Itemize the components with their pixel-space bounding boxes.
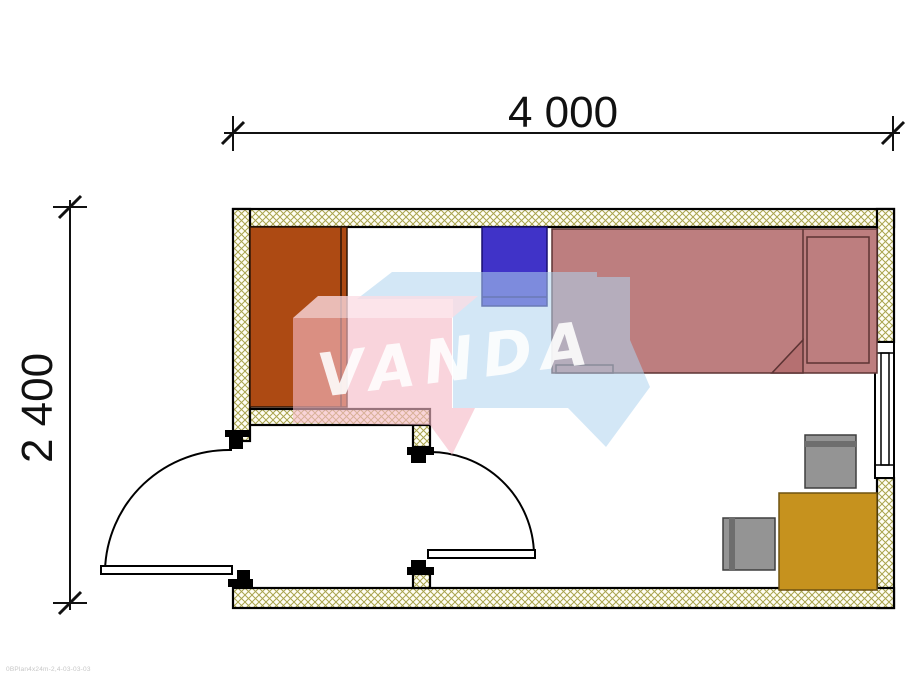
watermark-pink-topface <box>293 296 478 318</box>
entry-door-swing <box>101 450 232 574</box>
interior-door-bottom-jamb <box>407 567 434 575</box>
entry-door-bottom-jamb <box>228 579 253 587</box>
interior-door-bottom-jamb-block <box>411 560 426 568</box>
door-jambs <box>225 430 434 587</box>
desk <box>779 493 877 590</box>
left-wall <box>233 209 250 441</box>
chair-left-backrest <box>729 518 735 570</box>
window <box>875 342 894 478</box>
chair-left <box>723 518 775 570</box>
floor-plan-canvas: 4 000 2 400 VANDA 0BPlan4x24m-2,4-03-03-… <box>0 0 924 700</box>
height-dimension-label: 2 400 <box>13 353 62 463</box>
interior-door-leaf <box>428 550 535 558</box>
footer-note: 0BPlan4x24m-2,4-03-03-03 <box>6 666 91 673</box>
vanda-watermark: VANDA <box>293 272 650 455</box>
floor-plan-drawing: 4 000 2 400 VANDA <box>0 0 924 700</box>
bed-pillow <box>807 237 869 363</box>
door-pier <box>413 574 430 588</box>
interior-door-top-jamb-block <box>411 455 426 463</box>
width-dimension-label: 4 000 <box>508 88 618 137</box>
chair-top <box>805 435 856 488</box>
entry-door-top-jamb <box>225 430 249 437</box>
width-dimension: 4 000 <box>222 88 904 151</box>
bottom-wall <box>233 588 894 608</box>
entry-door-top-jamb-block <box>229 437 243 449</box>
interior-door-swing <box>428 452 535 558</box>
interior-door-arc <box>428 452 534 554</box>
right-wall-upper <box>877 209 894 342</box>
interior-wall-stub <box>413 425 430 447</box>
entry-door-leaf <box>101 566 232 574</box>
entry-door-bottom-jamb-block <box>237 570 250 579</box>
top-wall <box>233 209 894 227</box>
entry-door-arc <box>105 450 232 570</box>
chair-top-backrest <box>805 441 856 447</box>
height-dimension: 2 400 <box>13 196 87 614</box>
